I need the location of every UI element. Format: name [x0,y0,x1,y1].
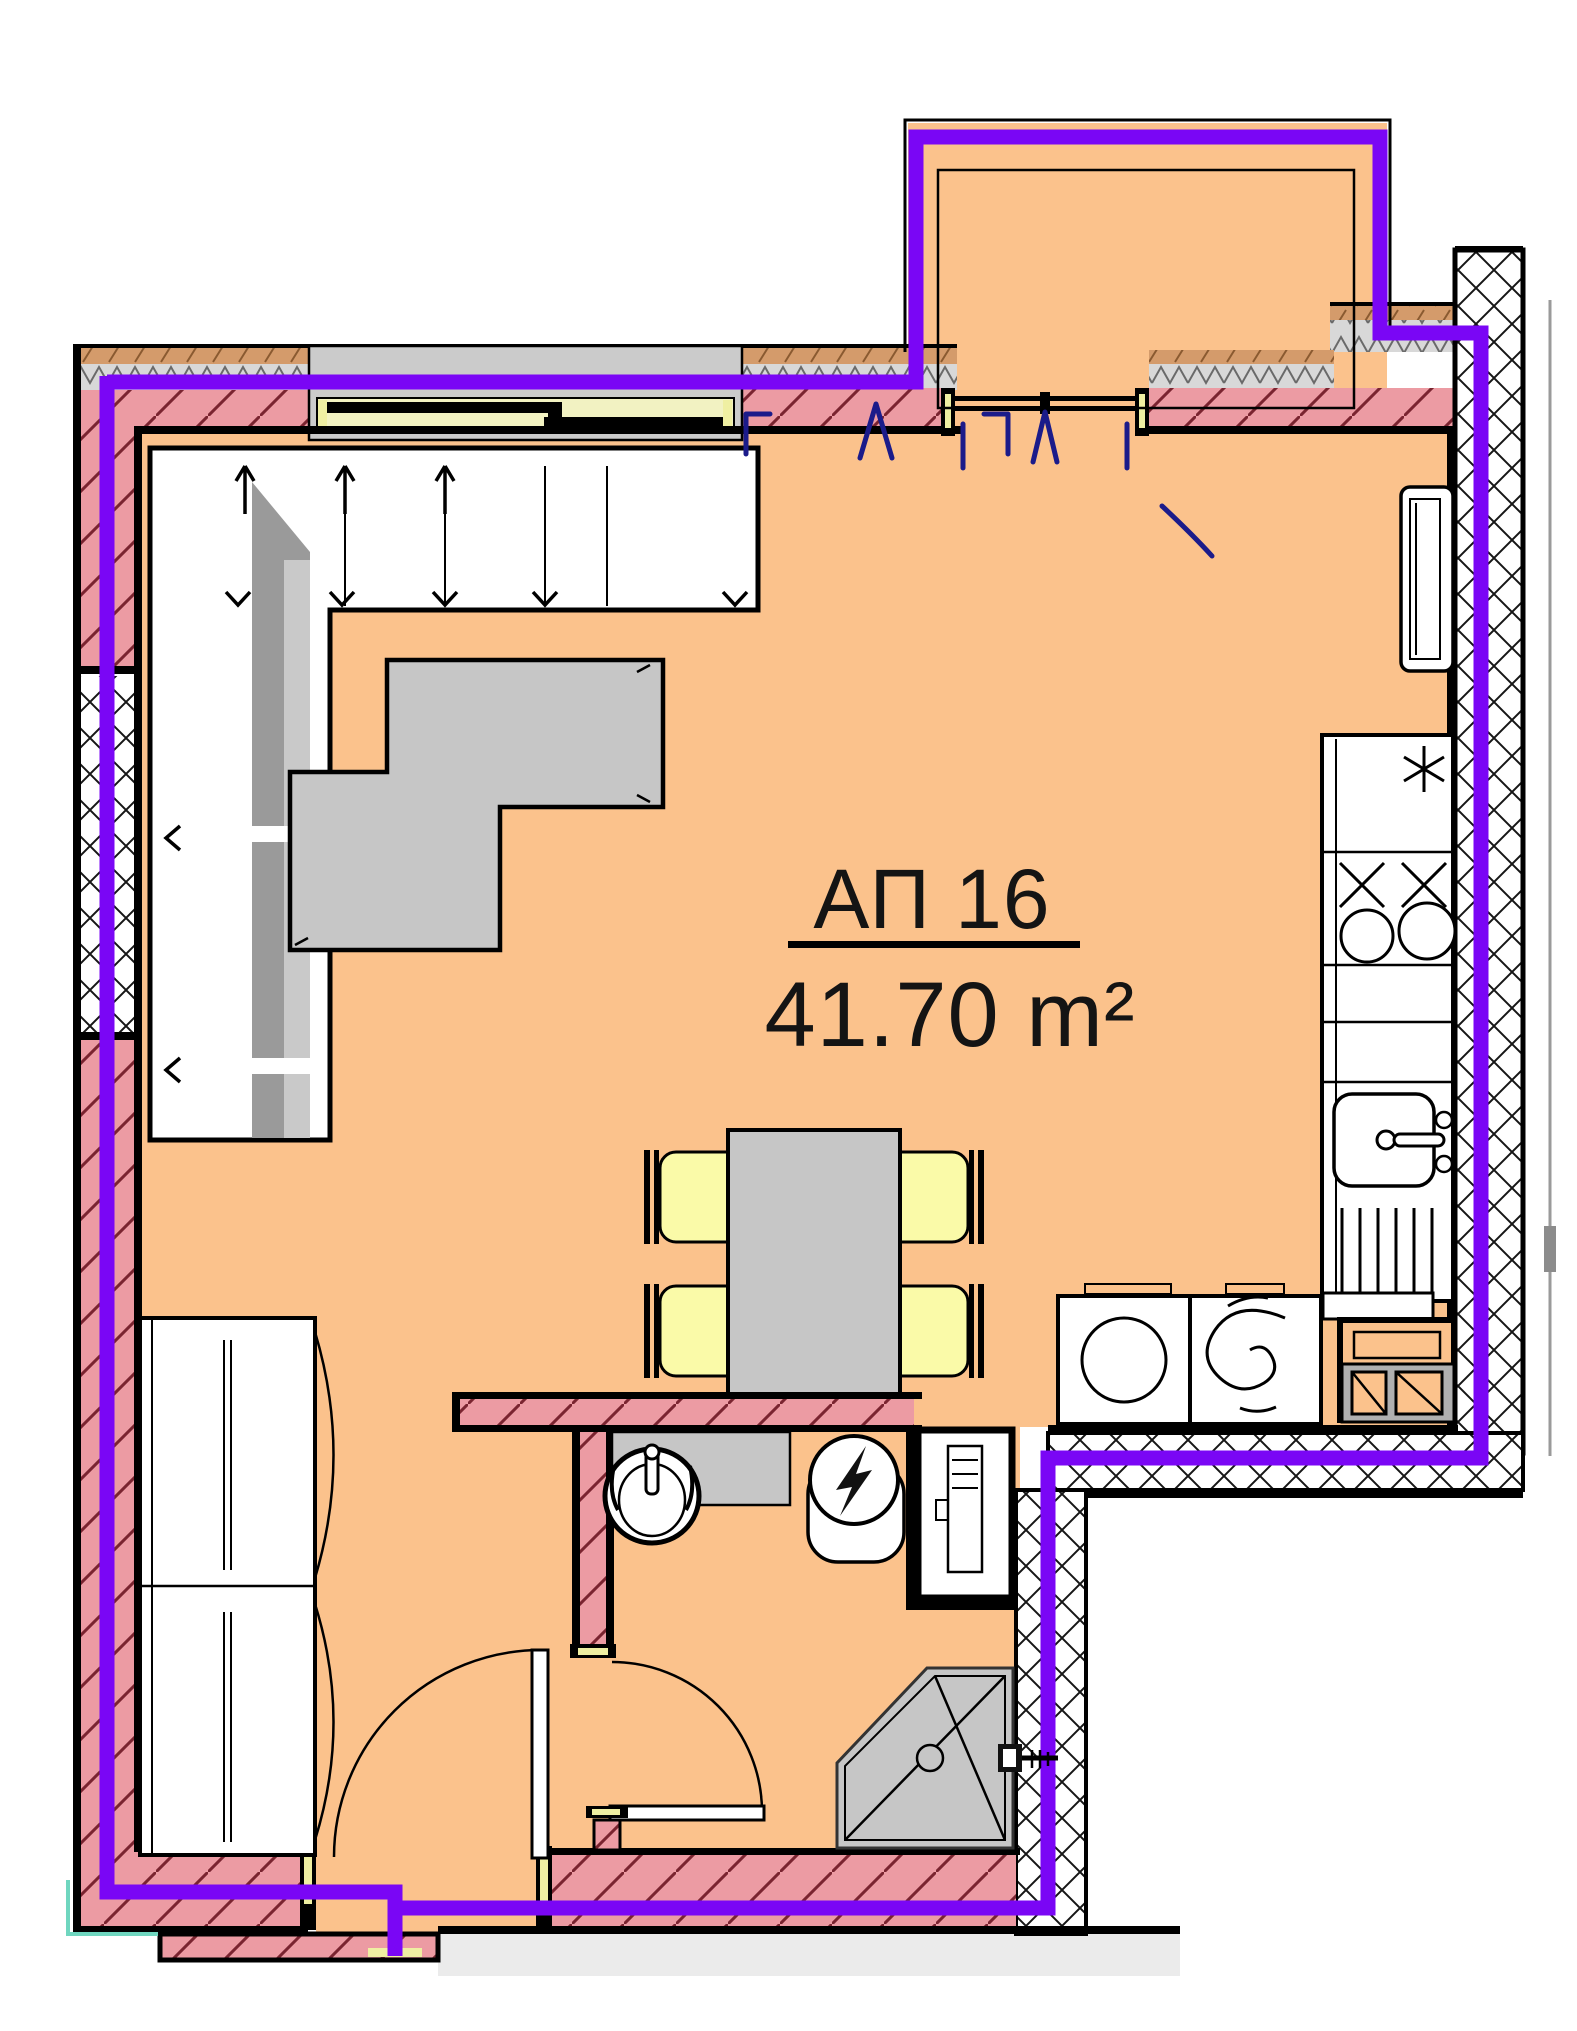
window [309,346,742,440]
service-shaft [1340,1320,1454,1422]
wardrobe [140,1318,334,1855]
apartment-label: АП 16 [813,852,1050,946]
radiator [1401,487,1453,671]
dryer [1190,1296,1321,1424]
area-label: 41.70 m² [764,964,1135,1066]
washing-machine [1058,1296,1190,1424]
water-heater [810,1436,898,1524]
pipe-chase [918,1430,1012,1598]
dining-table [728,1130,900,1398]
label-underline [788,941,1080,948]
floor-plan: АП 16 41.70 m² [0,0,1577,2031]
